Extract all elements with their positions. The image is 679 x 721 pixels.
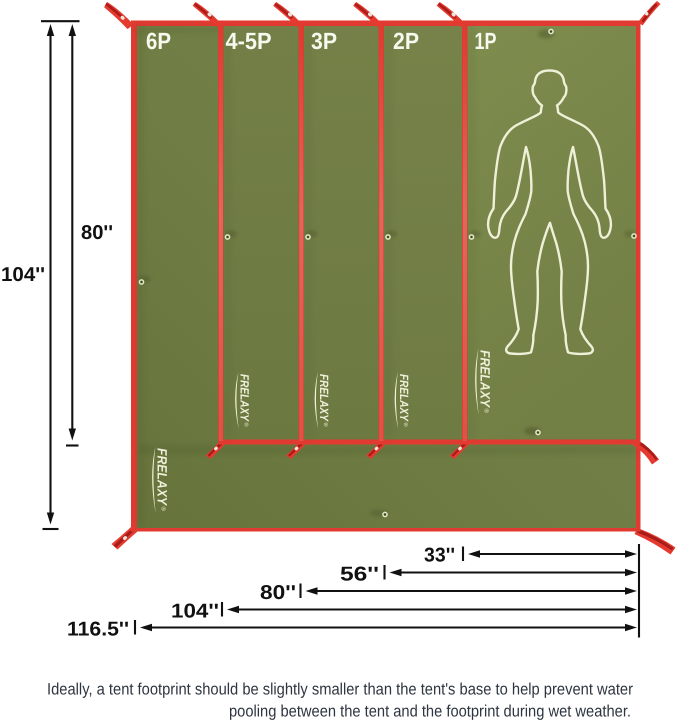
svg-text:80'': 80'' xyxy=(260,582,296,604)
svg-text:104'': 104'' xyxy=(171,601,219,623)
svg-text:FRELAXY: FRELAXY xyxy=(397,374,411,422)
svg-text:1P: 1P xyxy=(475,28,497,54)
svg-text:®: ® xyxy=(322,423,328,427)
svg-text:Ideally, a tent footprint shou: Ideally, a tent footprint should be slig… xyxy=(47,681,633,699)
svg-text:3P: 3P xyxy=(311,28,337,54)
svg-text:FRELAXY: FRELAXY xyxy=(155,448,170,507)
svg-text:®: ® xyxy=(160,507,167,512)
svg-text:33'': 33'' xyxy=(424,545,455,567)
svg-text:®: ® xyxy=(483,409,490,414)
svg-text:6P: 6P xyxy=(146,28,171,54)
svg-text:104'': 104'' xyxy=(1,264,45,286)
svg-text:4-5P: 4-5P xyxy=(226,28,272,54)
svg-text:FRELAXY: FRELAXY xyxy=(478,350,493,409)
svg-text:80'': 80'' xyxy=(81,222,113,244)
svg-text:FRELAXY: FRELAXY xyxy=(317,374,331,422)
svg-text:2P: 2P xyxy=(393,28,419,54)
svg-text:FRELAXY: FRELAXY xyxy=(238,374,252,422)
svg-text:116.5'': 116.5'' xyxy=(67,619,129,641)
svg-text:®: ® xyxy=(243,423,249,427)
svg-text:®: ® xyxy=(402,423,408,427)
svg-text:56'': 56'' xyxy=(340,564,379,586)
svg-text:pooling between the tent and t: pooling between the tent and the footpri… xyxy=(229,703,631,721)
